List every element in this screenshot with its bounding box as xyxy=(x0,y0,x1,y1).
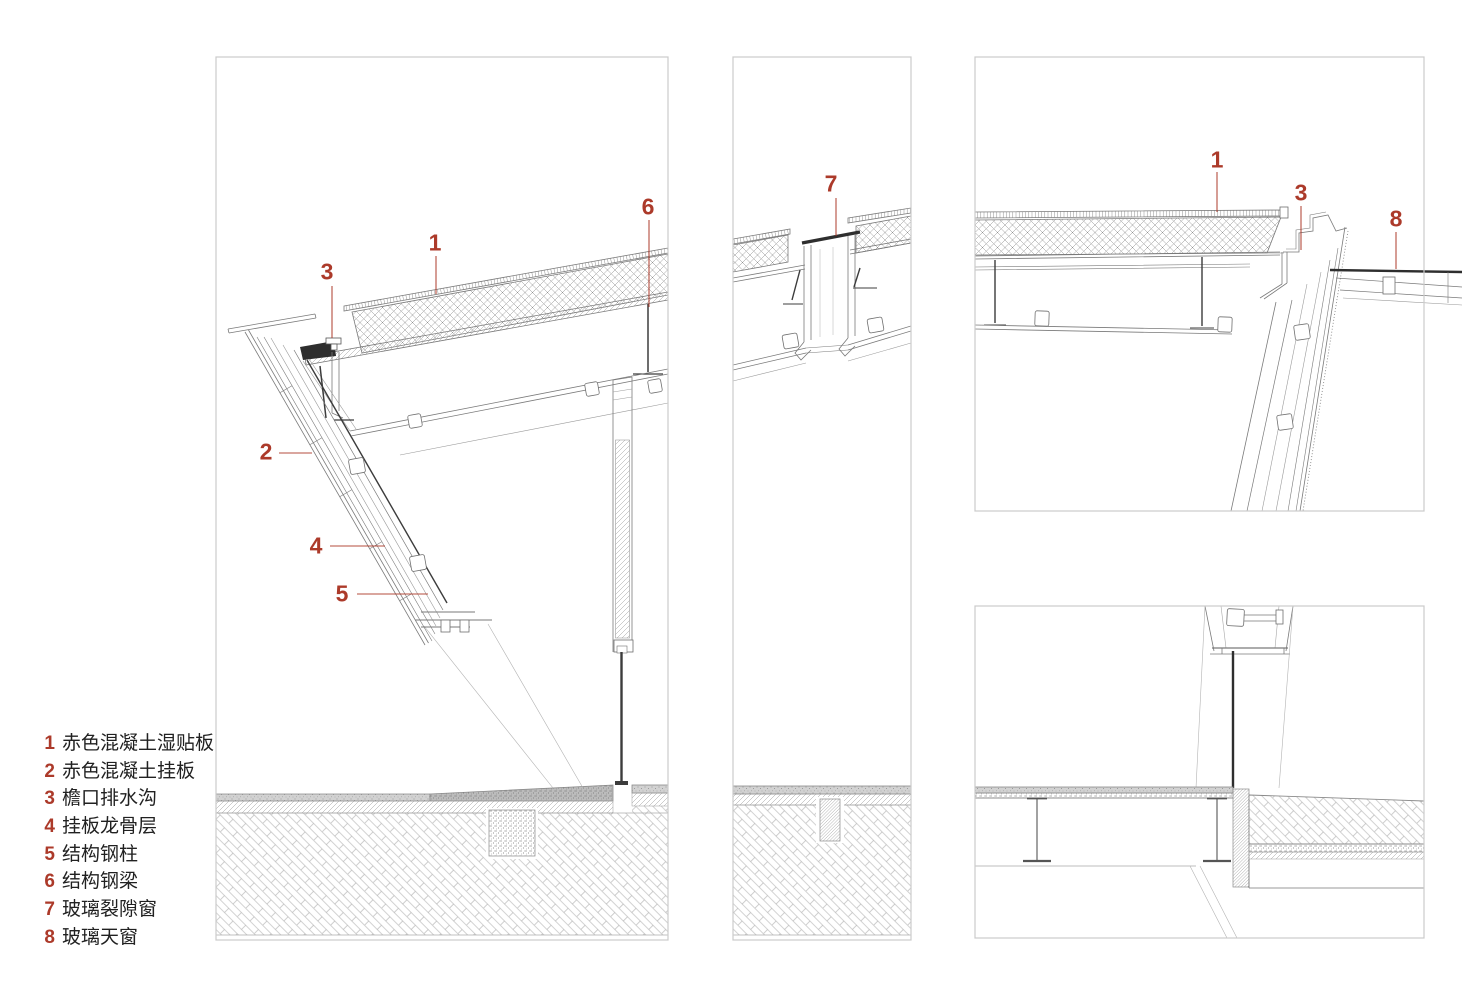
skylight-glazing xyxy=(1330,270,1462,305)
legend-item-label: 檐口排水沟 xyxy=(62,783,157,810)
legend-item: 3 檐口排水沟 xyxy=(38,783,214,811)
legend-item-label: 玻璃裂隙窗 xyxy=(62,894,157,921)
callout-middle-7: 7 xyxy=(825,173,838,196)
legend-item-number: 6 xyxy=(38,871,55,893)
callout-right-1: 1 xyxy=(1211,149,1224,172)
callout-right-3: 3 xyxy=(1295,182,1308,205)
legend-item: 5 结构钢柱 xyxy=(38,839,214,867)
legend-item-number: 1 xyxy=(38,733,55,755)
legend-item-label: 赤色混凝土湿贴板 xyxy=(62,728,214,755)
callout-number: 8 xyxy=(1390,206,1403,232)
legend-item: 2 赤色混凝土挂板 xyxy=(38,756,214,784)
callout-left-4: 4 xyxy=(310,535,323,558)
callout-number: 7 xyxy=(825,171,838,197)
callout-number: 6 xyxy=(642,194,655,220)
legend-item: 4 挂板龙骨层 xyxy=(38,811,214,839)
legend-item-number: 2 xyxy=(38,761,55,783)
legend-item: 6 结构钢梁 xyxy=(38,866,214,894)
legend-item-label: 结构钢梁 xyxy=(62,866,138,893)
callout-left-5: 5 xyxy=(336,583,349,606)
legend-item: 1 赤色混凝土湿贴板 xyxy=(38,728,214,756)
callout-number: 1 xyxy=(1211,147,1224,173)
callout-number: 1 xyxy=(429,230,442,256)
legend-item-label: 赤色混凝土挂板 xyxy=(62,756,195,783)
callout-number: 4 xyxy=(310,533,323,559)
callout-left-1: 1 xyxy=(429,232,442,255)
drawing-sheet: 3 1 6 2 4 5 7 1 3 8 1 赤色混凝土湿贴板 2 赤色混凝土挂板… xyxy=(0,0,1462,1000)
callout-number: 5 xyxy=(336,581,349,607)
callout-right-8: 8 xyxy=(1390,208,1403,231)
top-right-panel-drawing xyxy=(975,207,1348,511)
legend-item-number: 7 xyxy=(38,899,55,921)
legend-item: 7 玻璃裂隙窗 xyxy=(38,894,214,922)
middle-panel-drawing xyxy=(733,208,911,935)
legend-item-number: 3 xyxy=(38,788,55,810)
legend-item-label: 挂板龙骨层 xyxy=(62,811,157,838)
legend-item-number: 4 xyxy=(38,816,55,838)
legend-item-label: 玻璃天窗 xyxy=(62,922,138,949)
callout-left-3: 3 xyxy=(321,261,334,284)
construction-detail-drawing xyxy=(0,0,1462,1000)
legend: 1 赤色混凝土湿贴板 2 赤色混凝土挂板 3 檐口排水沟 4 挂板龙骨层 5 结… xyxy=(38,728,214,950)
legend-item-number: 5 xyxy=(38,844,55,866)
callout-left-6: 6 xyxy=(642,196,655,219)
bottom-right-panel-drawing xyxy=(975,606,1424,938)
callout-number: 3 xyxy=(321,259,334,285)
legend-item: 8 玻璃天窗 xyxy=(38,922,214,950)
top-right-panel-frame xyxy=(975,57,1424,511)
legend-item-number: 8 xyxy=(38,927,55,949)
legend-item-label: 结构钢柱 xyxy=(62,839,138,866)
callout-left-2: 2 xyxy=(260,441,273,464)
callout-number: 3 xyxy=(1295,180,1308,206)
callout-number: 2 xyxy=(260,439,273,465)
left-panel-drawing xyxy=(216,248,668,935)
